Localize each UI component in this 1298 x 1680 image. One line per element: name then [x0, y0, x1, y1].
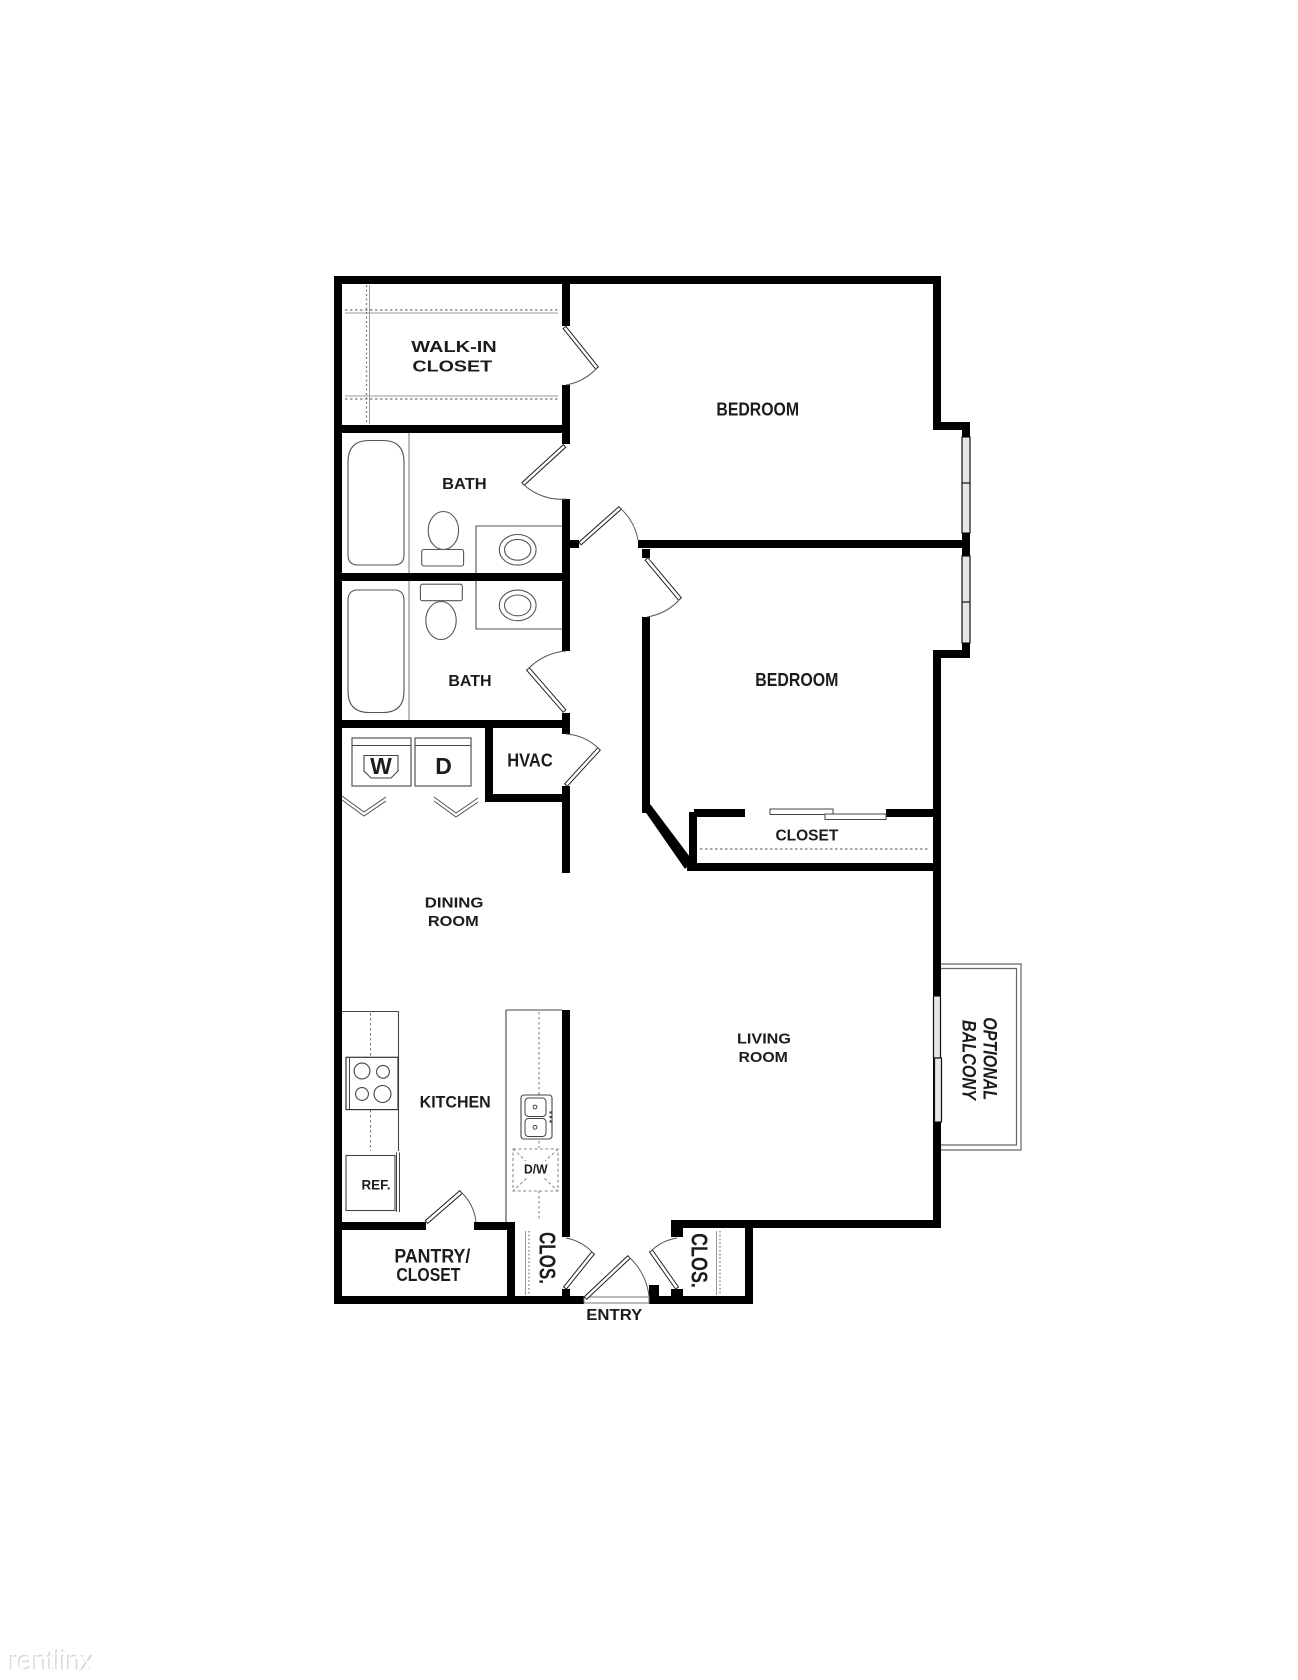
svg-text:OPTIONAL: OPTIONAL	[979, 1017, 1001, 1100]
svg-text:rentlinx: rentlinx	[10, 1646, 95, 1677]
svg-text:BEDROOM: BEDROOM	[755, 670, 838, 690]
svg-text:D: D	[435, 753, 452, 779]
svg-text:ROOM: ROOM	[428, 913, 479, 930]
svg-text:BALCONY: BALCONY	[958, 1020, 980, 1102]
svg-text:KITCHEN: KITCHEN	[420, 1093, 491, 1112]
svg-text:CLOSET: CLOSET	[776, 827, 839, 844]
svg-text:LIVING: LIVING	[737, 1030, 791, 1047]
svg-text:CLOS.: CLOS.	[534, 1232, 559, 1284]
svg-text:WALK-IN: WALK-IN	[411, 339, 497, 356]
svg-text:REF.: REF.	[362, 1177, 391, 1193]
svg-text:DINING: DINING	[425, 894, 484, 911]
svg-text:CLOSET: CLOSET	[396, 1265, 460, 1285]
svg-text:BATH: BATH	[448, 673, 491, 690]
svg-text:CLOS.: CLOS.	[686, 1233, 712, 1288]
svg-text:D/W: D/W	[524, 1163, 548, 1177]
svg-text:ROOM: ROOM	[739, 1049, 788, 1066]
svg-text:HVAC: HVAC	[507, 750, 552, 771]
svg-text:W: W	[370, 753, 392, 779]
svg-text:ENTRY: ENTRY	[586, 1307, 643, 1324]
svg-text:CLOSET: CLOSET	[412, 359, 492, 376]
svg-text:BEDROOM: BEDROOM	[716, 399, 799, 419]
svg-text:BATH: BATH	[442, 476, 487, 493]
